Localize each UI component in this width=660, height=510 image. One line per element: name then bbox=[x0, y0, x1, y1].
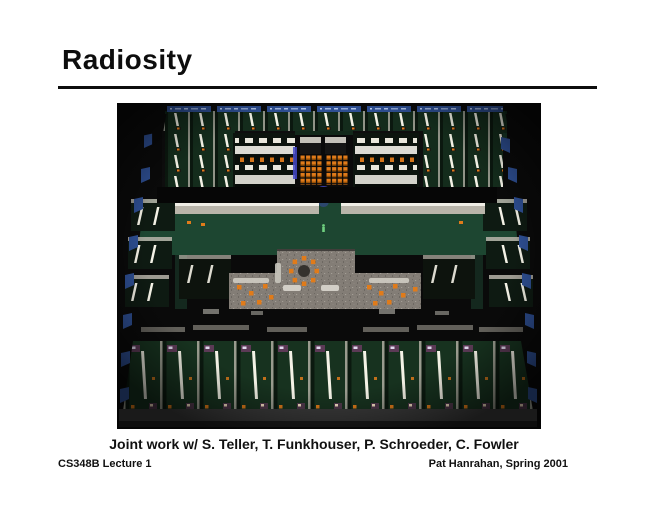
slide-title: Radiosity bbox=[62, 44, 193, 76]
figure-caption: Joint work w/ S. Teller, T. Funkhouser, … bbox=[0, 436, 628, 452]
vignette-overlay bbox=[117, 103, 541, 429]
radiosity-render-image bbox=[117, 103, 541, 429]
radiosity-render-figure bbox=[117, 103, 541, 429]
title-rule bbox=[58, 86, 597, 89]
footer-course: CS348B Lecture 1 bbox=[58, 458, 152, 470]
footer-author: Pat Hanrahan, Spring 2001 bbox=[429, 458, 568, 470]
slide: Radiosity bbox=[0, 0, 660, 510]
